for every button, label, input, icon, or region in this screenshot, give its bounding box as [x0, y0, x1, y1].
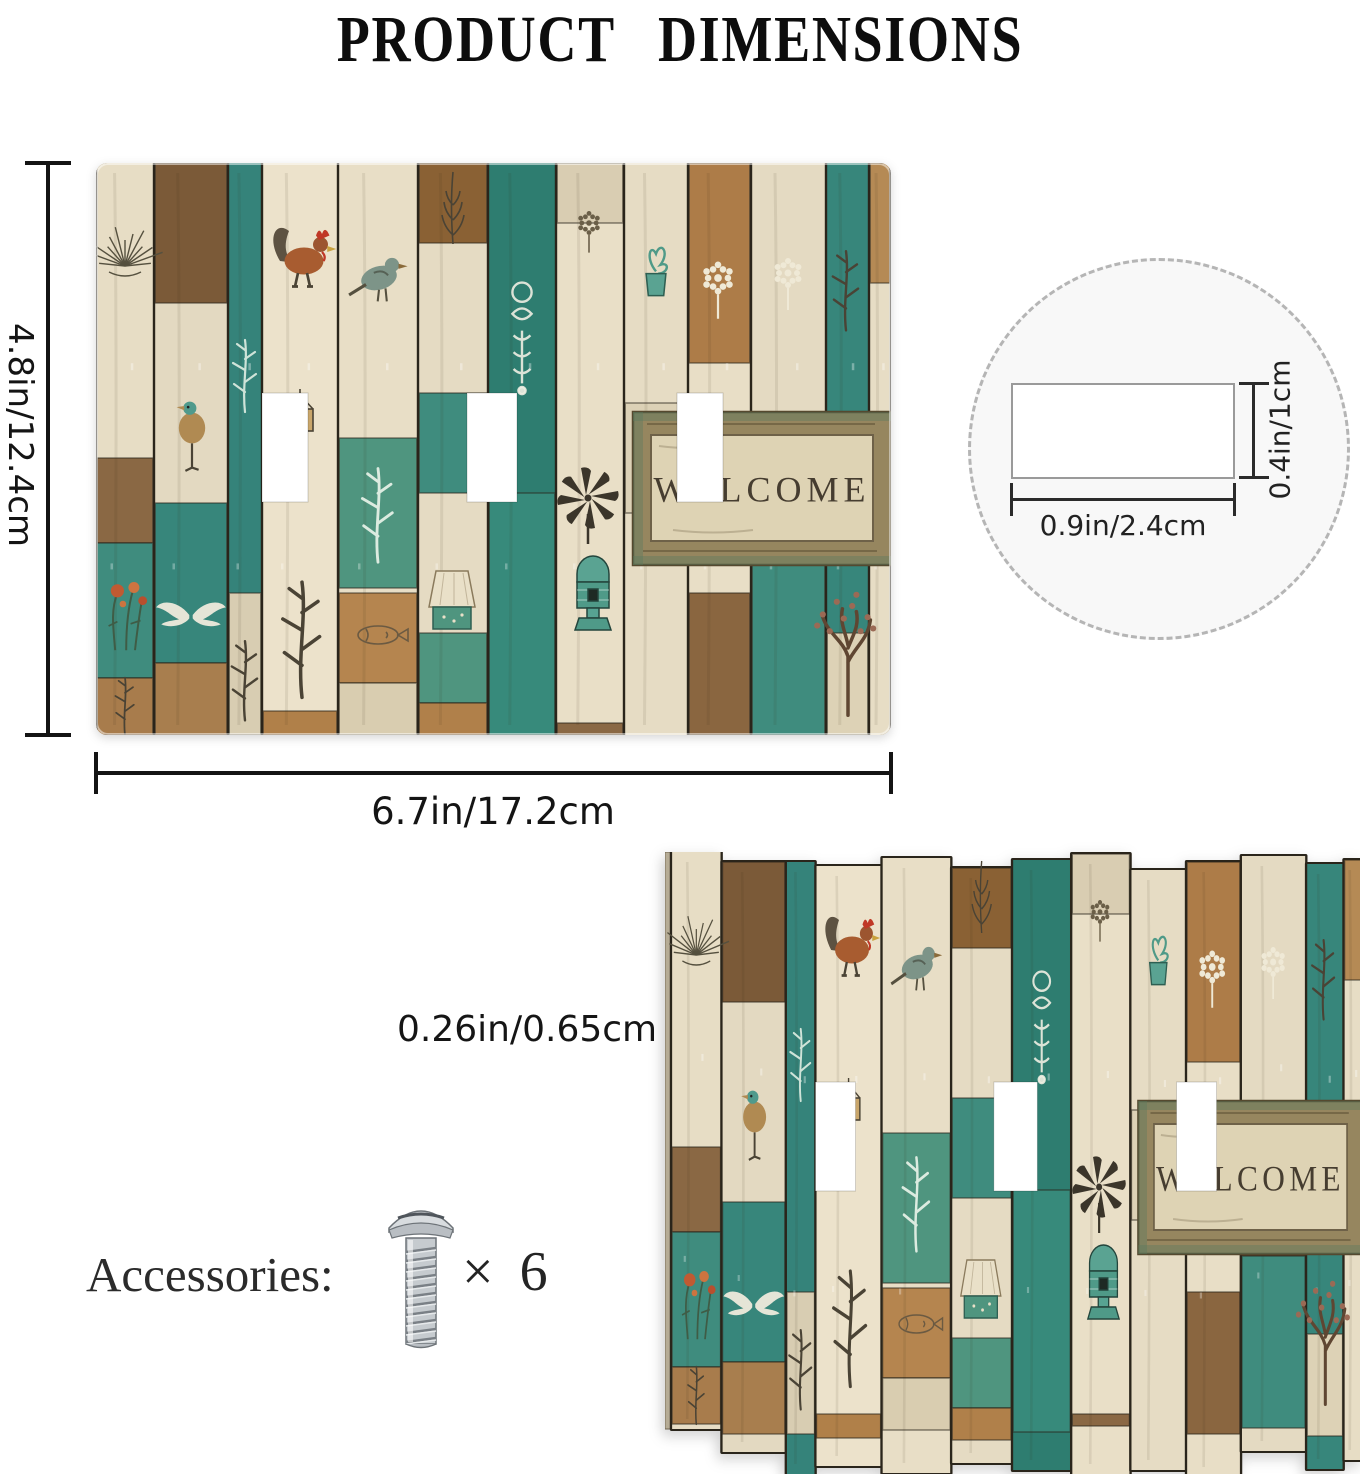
- toggle-hole-detail-rect: [1011, 383, 1235, 479]
- plate-front-image: WELCOME: [96, 163, 891, 735]
- height-dimension-cap-top: [25, 161, 71, 165]
- welcome-sign: WELCOME: [633, 412, 891, 565]
- height-dimension-line: [46, 163, 50, 735]
- page-title: PRODUCT DIMENSIONS: [122, 2, 1237, 78]
- height-dimension-label: 4.8in/12.4cm: [0, 323, 40, 543]
- width-dimension-label: 6.7in/17.2cm: [313, 790, 673, 833]
- accessories-label: Accessories:: [86, 1246, 334, 1303]
- hole-width-line: [1011, 498, 1235, 501]
- width-dimension-cap-right: [889, 752, 893, 794]
- accessories-quantity: × 6: [462, 1240, 554, 1304]
- height-dimension-cap-bottom: [25, 733, 71, 737]
- hole-height-label: 0.4in/1cm: [1264, 350, 1297, 510]
- welcome-sign: WELCOME: [1138, 1101, 1360, 1254]
- hole-width-cap-left: [1010, 483, 1013, 516]
- hole-width-label: 0.9in/2.4cm: [1028, 509, 1218, 542]
- thickness-value: 0.26in/0.65cm: [397, 1009, 657, 1050]
- hole-detail-circle: 0.9in/2.4cm 0.4in/1cm: [968, 258, 1350, 640]
- hole-height-line: [1252, 383, 1255, 479]
- plate-angled-image: WELCOME: [665, 852, 1360, 1474]
- screw-icon: [384, 1202, 458, 1354]
- thickness-label: 0.26in/0.65cmH: [397, 1009, 696, 1050]
- hole-width-cap-right: [1233, 483, 1236, 516]
- width-dimension-line: [96, 771, 891, 775]
- width-dimension-cap-left: [94, 752, 98, 794]
